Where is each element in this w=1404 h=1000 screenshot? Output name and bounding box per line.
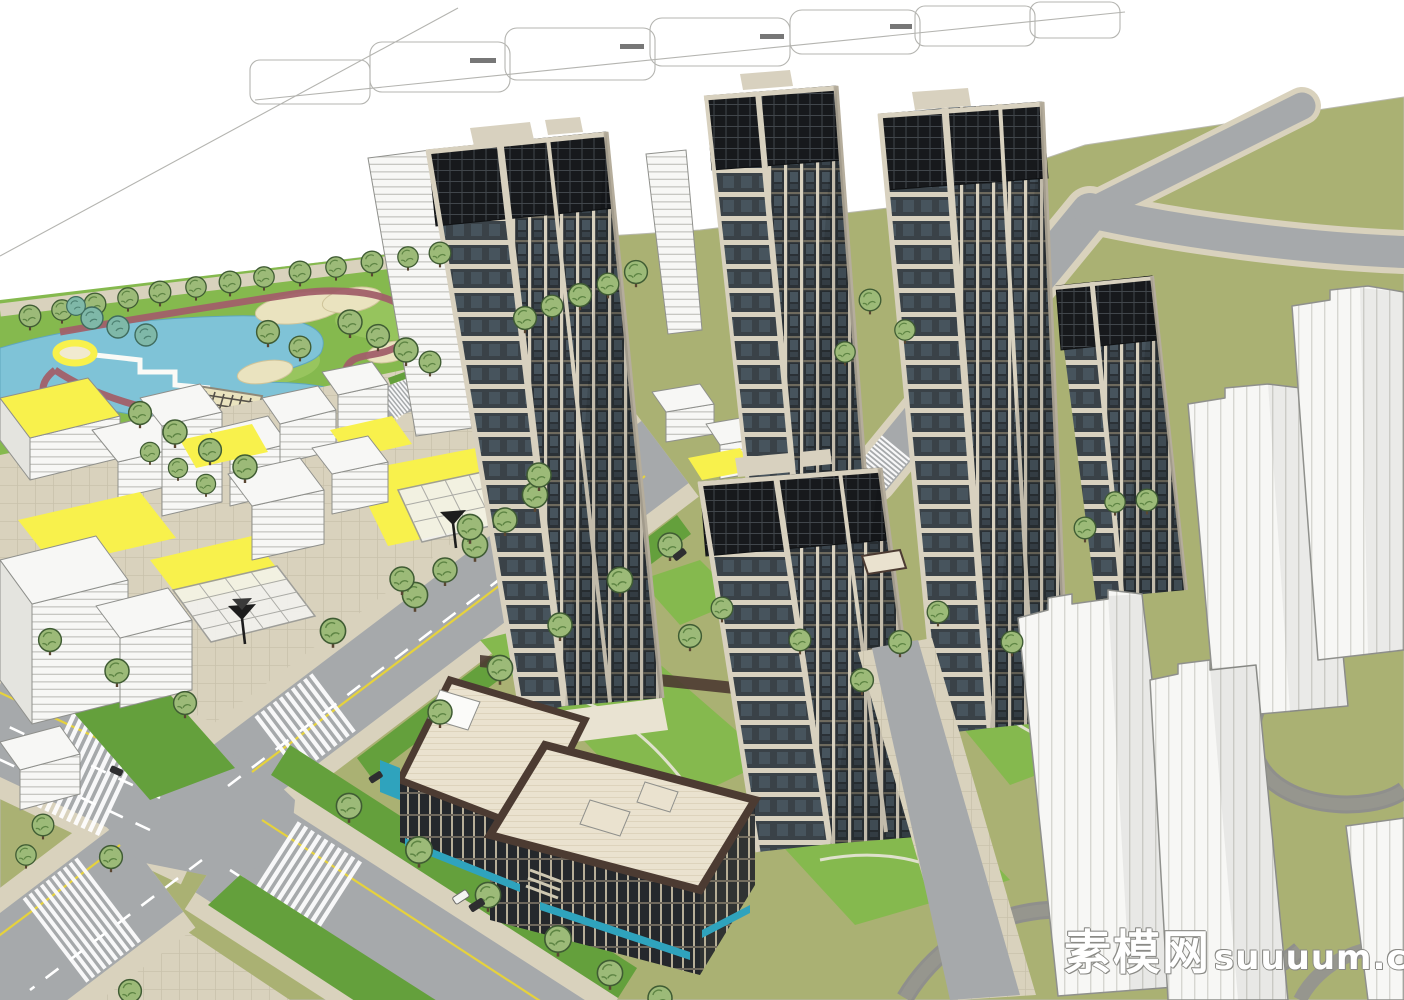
architectural-render: 素模网suuuum.com [0, 0, 1404, 1000]
watermark-cjk: 素模网 [1064, 914, 1211, 983]
ring-feature [56, 343, 94, 363]
rendered-scene [0, 0, 1404, 1000]
massing-block [0, 536, 128, 724]
watermark-latin: suuuum.com [1214, 938, 1404, 978]
watermark: 素模网suuuum.com [1064, 914, 1404, 983]
